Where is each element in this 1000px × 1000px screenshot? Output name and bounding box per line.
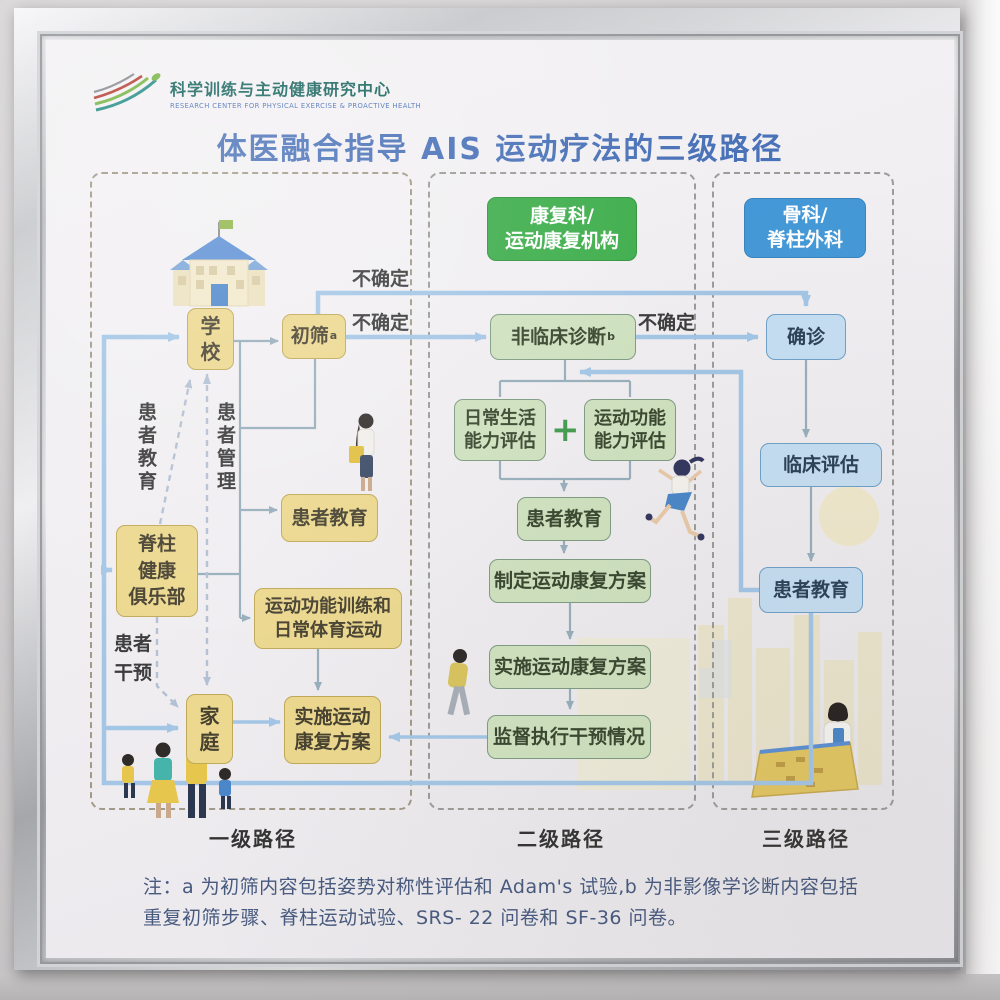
connector-dashed-club-to-family [157,617,178,707]
connector-dashed-club-to-school [160,380,190,524]
node-nonclinical-dx: 非临床诊断b [490,314,636,360]
logo: 科学训练与主动健康研究中心 RESEARCH CENTER FOR PHYSIC… [92,70,421,116]
node-patient-edu-l3: 患者教育 [759,567,863,613]
edge-label-patient-edu: 患者教育 [133,402,160,512]
connector-nonclinical-bracket-top [500,360,630,397]
node-school: 学 校 [187,308,234,370]
node-patient-edu-l1: 患者教育 [281,494,378,542]
node-implement-l1: 实施运动 康复方案 [284,696,381,764]
node-training: 运动功能训练和 日常体育运动 [254,588,402,649]
footer-path1: 一级路径 [209,823,297,852]
header-ortho-dept: 骨科/ 脊柱外科 [744,198,866,258]
footer-path3: 三级路径 [762,823,850,852]
node-screening: 初筛a [282,314,346,359]
node-make-plan: 制定运动康复方案 [489,559,651,603]
edge-label-patient-mgmt: 患者管理 [212,402,239,512]
node-confirm-dx: 确诊 [766,314,846,360]
edge-label-uncertain-right: 不确定 [638,308,695,335]
node-nonclinical-sup: b [607,330,615,344]
edge-label-patient-intervention: 患者 干预 [114,630,152,687]
logo-name-en: RESEARCH CENTER FOR PHYSICAL EXERCISE & … [170,102,421,110]
node-screening-label: 初筛 [291,324,329,349]
node-implement-l2: 实施运动康复方案 [489,645,651,689]
node-nonclinical-label: 非临床诊断 [511,325,606,350]
node-adl-assess: 日常生活 能力评估 [454,399,546,461]
footnote: 注：a 为初筛内容包括姿势对称性评估和 Adam's 试验,b 为非影像学诊断内… [143,872,883,934]
logo-swoosh-icon [92,70,162,116]
poster-title: 体医融合指导 AIS 运动疗法的三级路径 [0,124,1000,168]
node-clinical-eval: 临床评估 [760,443,882,487]
node-motor-assess: 运动功能 能力评估 [584,399,676,461]
connector-assess-bracket-bottom [500,461,630,491]
edge-label-uncertain-top: 不确定 [352,264,409,291]
edge-label-uncertain-mid: 不确定 [352,308,409,335]
node-patient-edu-l2: 患者教育 [517,497,611,541]
node-family: 家 庭 [186,694,233,764]
node-screening-sup: a [330,329,337,343]
plus-sign: + [551,410,580,450]
framed-poster-photo: 科学训练与主动健康研究中心 RESEARCH CENTER FOR PHYSIC… [0,0,1000,1000]
header-rehab-dept: 康复科/ 运动康复机构 [487,197,637,261]
footer-path2: 二级路径 [517,823,605,852]
node-supervise: 监督执行干预情况 [487,715,651,759]
node-spine-club: 脊柱 健康 俱乐部 [116,525,198,617]
logo-name-zh: 科学训练与主动健康研究中心 [170,76,421,100]
